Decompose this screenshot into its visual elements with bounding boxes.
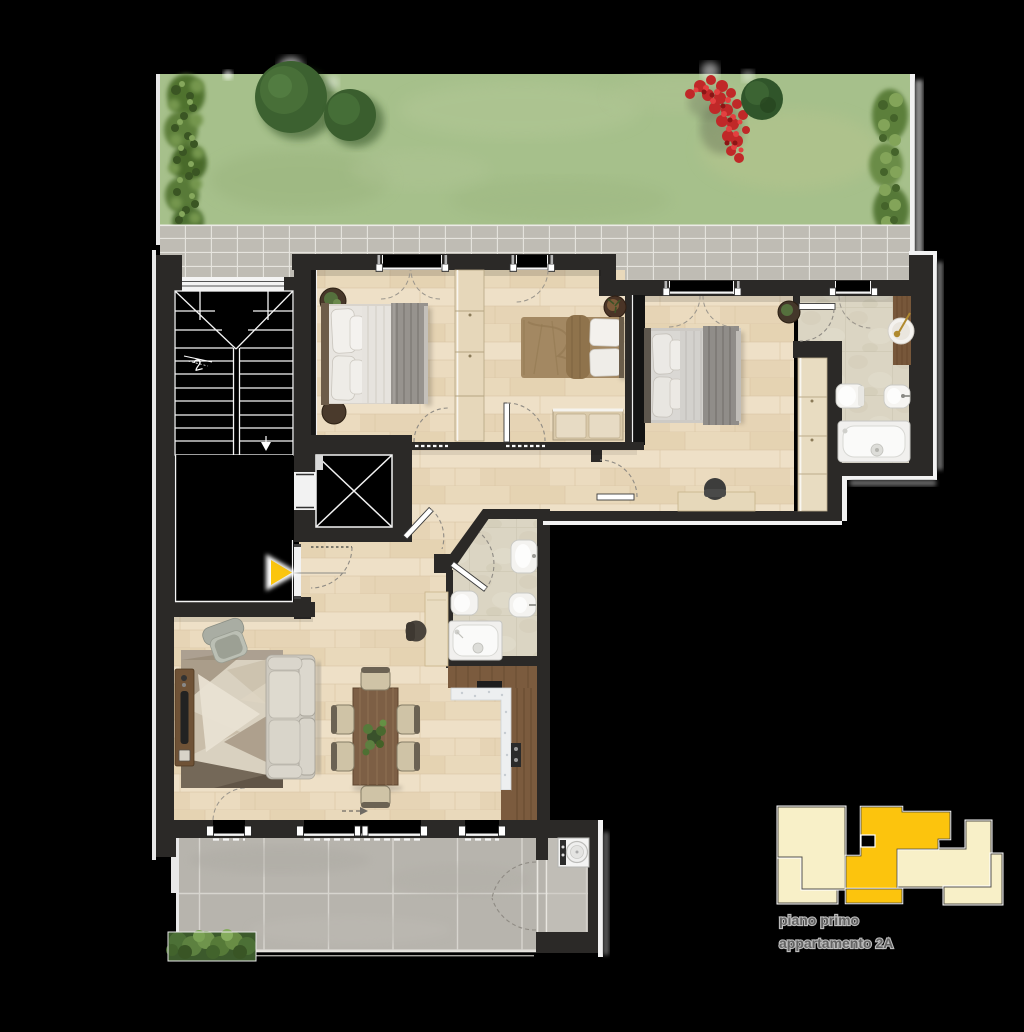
svg-text:piano primo: piano primo — [779, 912, 859, 928]
svg-text:appartamento 2A: appartamento 2A — [779, 935, 893, 951]
